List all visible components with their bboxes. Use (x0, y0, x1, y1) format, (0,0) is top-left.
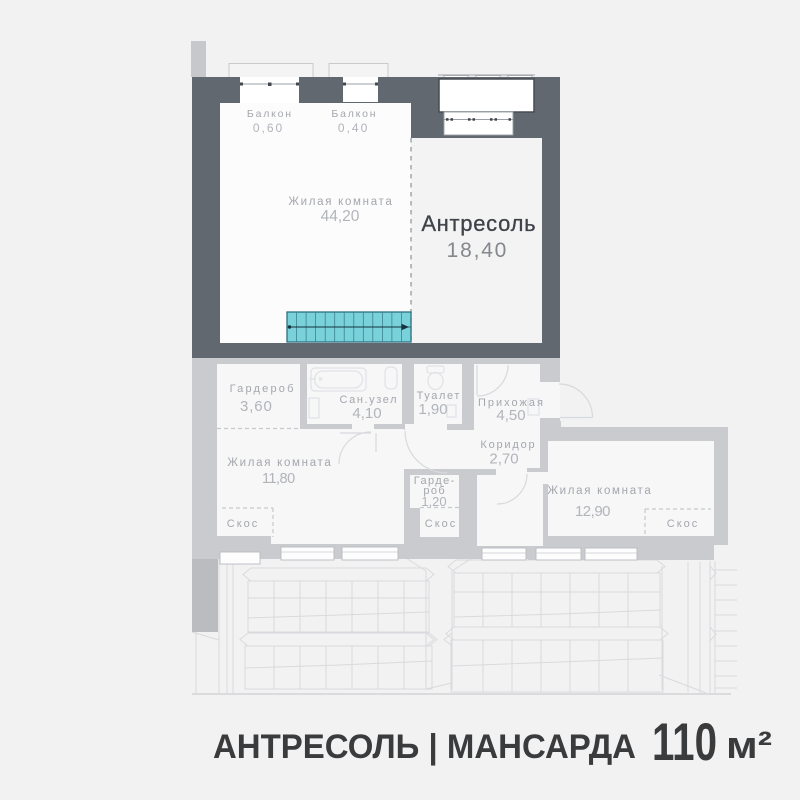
svg-text:18,40: 18,40 (447, 239, 509, 262)
svg-text:Коридор: Коридор (480, 439, 536, 451)
svg-text:Скос: Скос (425, 518, 458, 530)
svg-text:110: 110 (652, 713, 717, 772)
svg-text:0,40: 0,40 (338, 121, 369, 135)
svg-text:12,90: 12,90 (575, 503, 610, 520)
svg-text:11,80: 11,80 (262, 471, 295, 487)
svg-text:0,60: 0,60 (253, 121, 284, 135)
svg-text:Балкон: Балкон (247, 108, 293, 120)
svg-text:Балкон: Балкон (331, 108, 377, 120)
svg-text:Жилая комната: Жилая комната (227, 457, 332, 469)
svg-text:4,50: 4,50 (496, 407, 525, 424)
svg-text:2,70: 2,70 (489, 451, 518, 468)
svg-text:44,20: 44,20 (321, 208, 360, 225)
svg-text:АНТРЕСОЛЬ | МАНСАРДА: АНТРЕСОЛЬ | МАНСАРДА (213, 728, 636, 766)
svg-text:Скос: Скос (667, 518, 700, 530)
svg-text:3,60: 3,60 (240, 398, 273, 415)
svg-text:Антресоль: Антресоль (421, 211, 536, 236)
svg-text:1,20: 1,20 (421, 494, 446, 509)
svg-text:1,90: 1,90 (418, 401, 447, 418)
svg-text:Жилая комната: Жилая комната (288, 196, 393, 208)
svg-text:4,10: 4,10 (352, 405, 381, 422)
svg-text:Жилая комната: Жилая комната (547, 485, 652, 497)
svg-text:Гардероб: Гардероб (230, 383, 296, 395)
svg-text:Скос: Скос (227, 518, 260, 530)
svg-text:м²: м² (726, 725, 772, 767)
